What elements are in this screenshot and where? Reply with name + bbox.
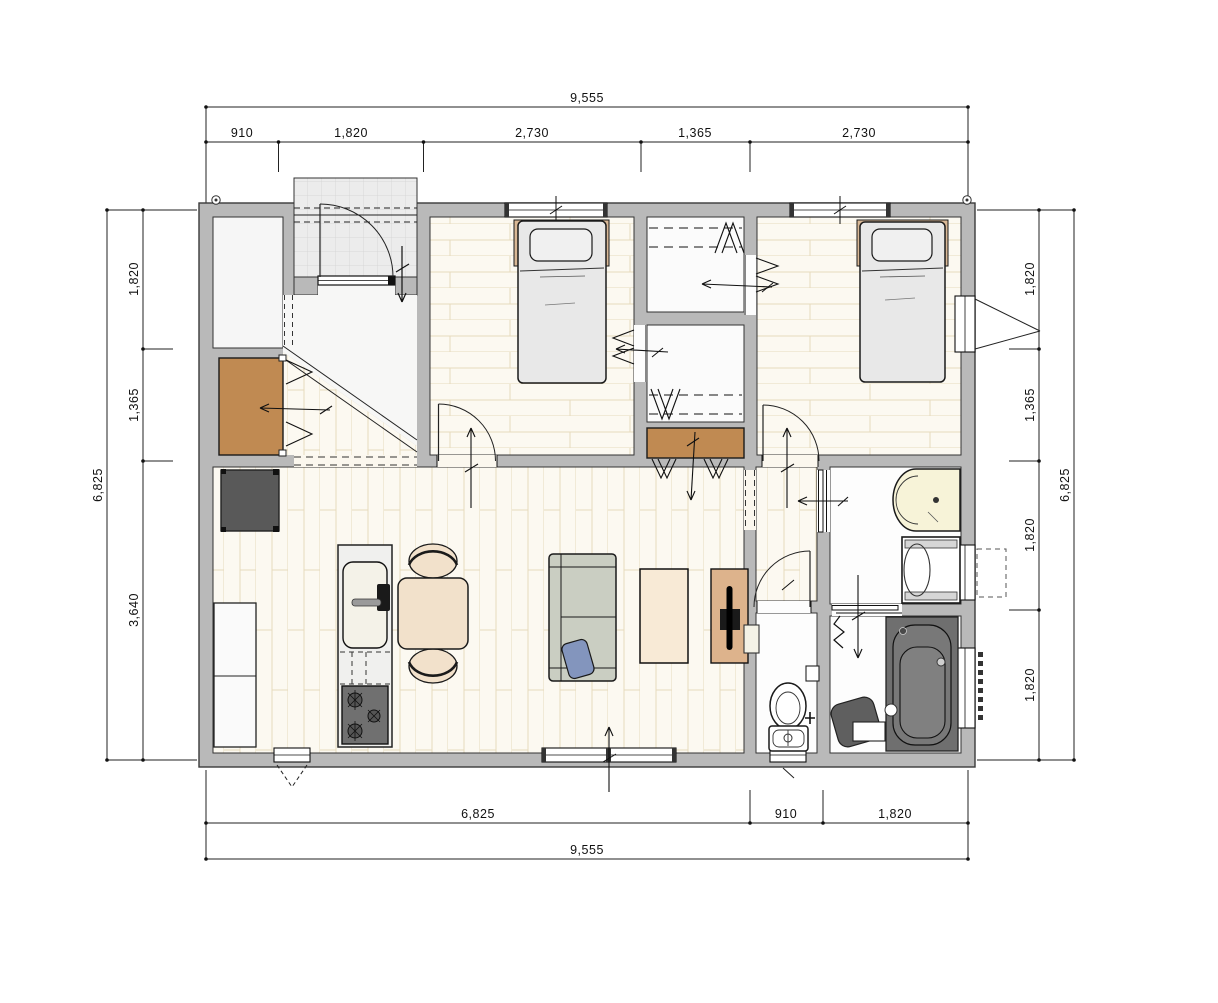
bath-bench — [853, 722, 885, 741]
paper-holder — [806, 666, 819, 681]
door-stub-right — [395, 277, 417, 295]
bed-west — [514, 220, 609, 383]
floor-plan-page: 9,555 910 1,820 2,730 1,365 2,730 6,825 … — [0, 0, 1218, 1003]
sofa — [549, 554, 616, 681]
dim-left-seg-2: 3,640 — [127, 593, 141, 627]
refrigerator — [221, 469, 279, 532]
tv-board — [711, 569, 748, 663]
floor-plan-drawing: 9,555 910 1,820 2,730 1,365 2,730 6,825 … — [0, 0, 1218, 1003]
room-closet-south — [647, 325, 744, 422]
wall-niche — [744, 625, 759, 653]
drain — [900, 628, 907, 635]
door-stub-left — [294, 277, 318, 295]
chair-top — [409, 544, 457, 578]
dim-top-seg-4: 2,730 — [842, 126, 876, 140]
window-washroom — [955, 545, 1006, 600]
dim-top-seg-1: 1,820 — [334, 126, 368, 140]
wash-bowl — [885, 704, 897, 716]
window-bathroom — [955, 648, 983, 728]
toilet-bowl — [770, 683, 806, 729]
dim-bottom-seg-1: 910 — [775, 807, 797, 821]
pillow — [872, 229, 932, 261]
dim-top-overall: 9,555 — [570, 91, 604, 105]
dim-top-seg-2: 2,730 — [515, 126, 549, 140]
television — [727, 586, 733, 650]
dim-left-seg-0: 1,820 — [127, 262, 141, 296]
dim-right-seg-3: 1,820 — [1023, 668, 1037, 702]
exterior-unit-dashed — [977, 549, 1006, 597]
dim-right-seg-1: 1,365 — [1023, 388, 1037, 422]
pillow — [530, 229, 592, 261]
dim-left-seg-1: 1,365 — [127, 388, 141, 422]
dining-table — [398, 578, 468, 649]
window-bedroom-east-casement — [955, 296, 1040, 352]
dim-top-seg-3: 1,365 — [678, 126, 712, 140]
kitchen-island — [338, 545, 392, 747]
dim-right-seg-0: 1,820 — [1023, 262, 1037, 296]
bathtub — [886, 617, 958, 751]
faucet — [377, 584, 390, 611]
bed-east — [857, 220, 948, 382]
dim-left-overall: 6,825 — [91, 468, 105, 502]
gas-stove — [342, 686, 388, 744]
vanity-basin — [893, 469, 960, 531]
dim-top-seg-0: 910 — [231, 126, 253, 140]
coffee-table — [640, 569, 688, 663]
opening-hall-ldk-wide — [294, 455, 417, 467]
sink-handle — [352, 599, 381, 606]
dim-right-overall: 6,825 — [1058, 468, 1072, 502]
faucet — [933, 497, 939, 503]
dim-right-seg-2: 1,820 — [1023, 518, 1037, 552]
chair-bottom — [409, 649, 457, 683]
washing-machine — [902, 537, 960, 603]
dim-bottom-seg-2: 1,820 — [878, 807, 912, 821]
dim-bottom-overall: 9,555 — [570, 843, 604, 857]
kitchen-counter — [214, 603, 256, 747]
tub-faucet — [937, 658, 945, 666]
dim-bottom-seg-0: 6,825 — [461, 807, 495, 821]
opening-ldk-hall — [744, 470, 756, 530]
room-shoe-in-closet — [213, 217, 283, 348]
room-entrance-porch — [294, 178, 417, 277]
